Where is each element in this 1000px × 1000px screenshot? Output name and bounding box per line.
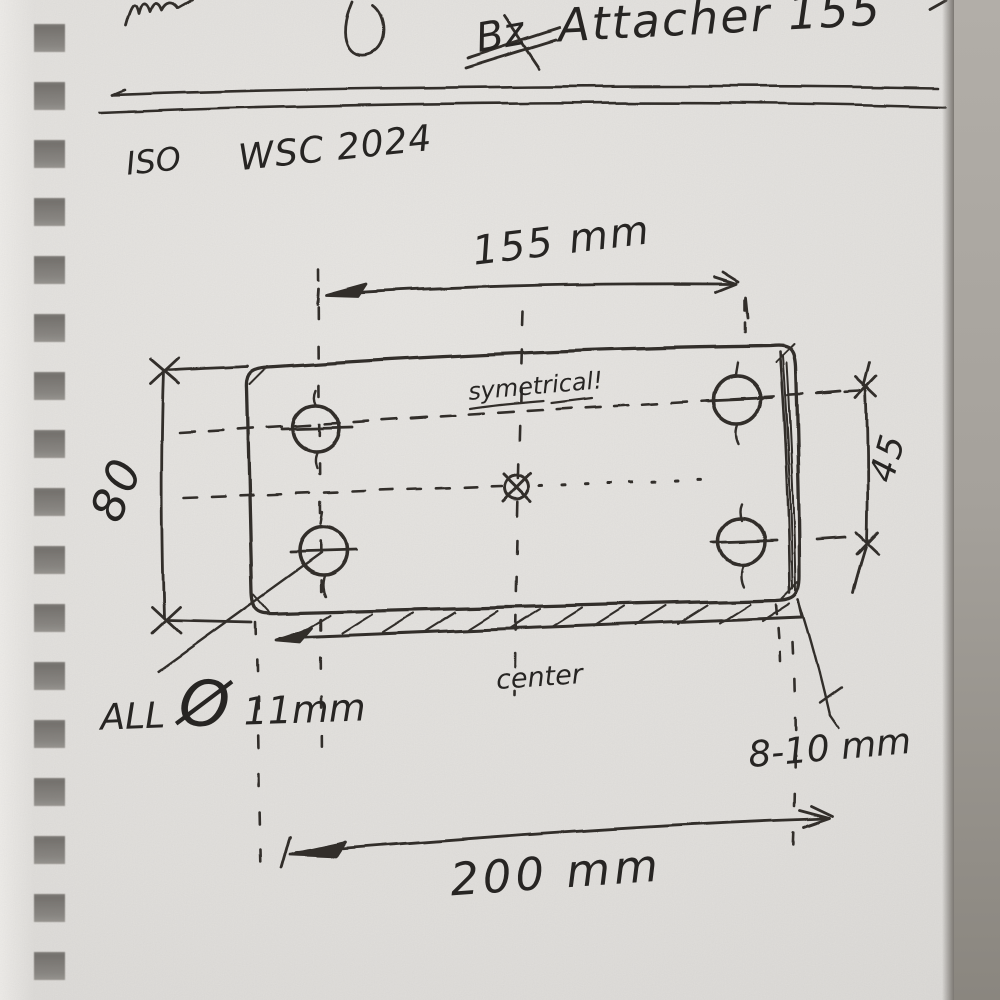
holes-note: ALL Ø 11mm [99, 671, 366, 738]
holes-note-prefix: ALL [100, 695, 166, 738]
crossed-out-word: Bz [472, 8, 528, 62]
table-background [954, 0, 1000, 1000]
center-label: center [495, 659, 584, 696]
holes-diameter-value: 11mm [243, 685, 367, 733]
notebook-page-photo: Attacher 155 Bz ISO WSC 2024 155 mm syme… [0, 0, 1000, 1000]
page-edge-shadow [942, 0, 954, 1000]
diameter-symbol: Ø [176, 675, 232, 738]
standard-label: ISO [124, 139, 183, 183]
